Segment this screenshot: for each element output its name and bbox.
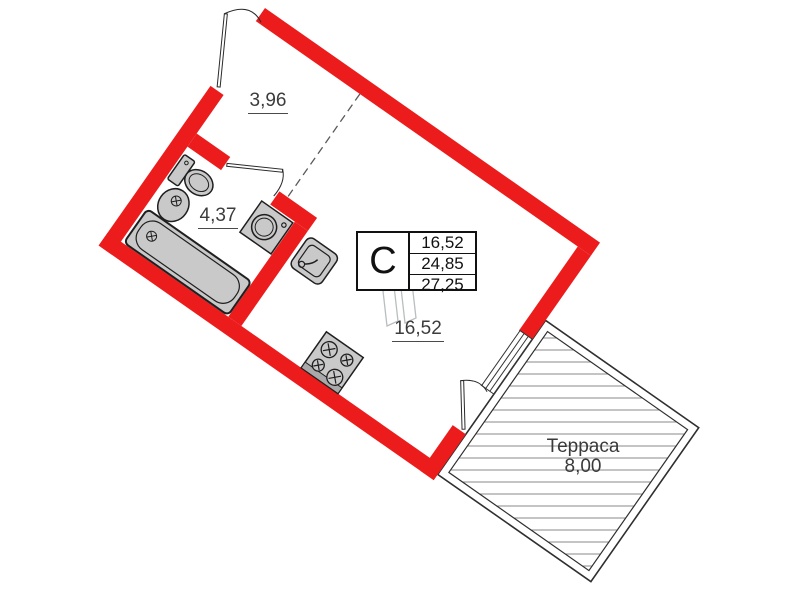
entry-door-swing-arc (224, 0, 263, 34)
floor-plan-canvas: 3,96 4,37 16,52 Терраса 8,00 С 16,52 24,… (0, 0, 800, 600)
area-total: 24,85 (410, 253, 475, 274)
terrace-label: Терраса 8,00 (536, 437, 630, 477)
terrace-door (438, 374, 491, 431)
zone-boundary-dashed-line (288, 94, 360, 197)
area-total-with-summer: 27,25 (410, 274, 475, 295)
terrace-area: 8,00 (565, 456, 602, 477)
entry-door (188, 0, 266, 88)
bathroom-door-swing-arc (267, 169, 289, 196)
wall-right-upper (519, 247, 591, 340)
unit-type-label: С (358, 233, 410, 289)
terrace-door-leaf (438, 379, 487, 430)
floor-plan-drawing (0, 0, 800, 600)
area-table: С 16,52 24,85 27,25 (356, 231, 477, 291)
main-room-area-label: 16,52 (386, 318, 450, 342)
terrace-door-swing-arc (461, 374, 489, 397)
area-living: 16,52 (410, 233, 475, 253)
bathroom-door-leaf (226, 141, 284, 194)
hallway-area-label: 3,96 (238, 90, 298, 114)
bathroom-door (226, 141, 290, 198)
entry-door-leaf (188, 13, 257, 89)
bathroom-area-label: 4,37 (188, 205, 248, 229)
terrace-name: Терраса (536, 437, 630, 457)
